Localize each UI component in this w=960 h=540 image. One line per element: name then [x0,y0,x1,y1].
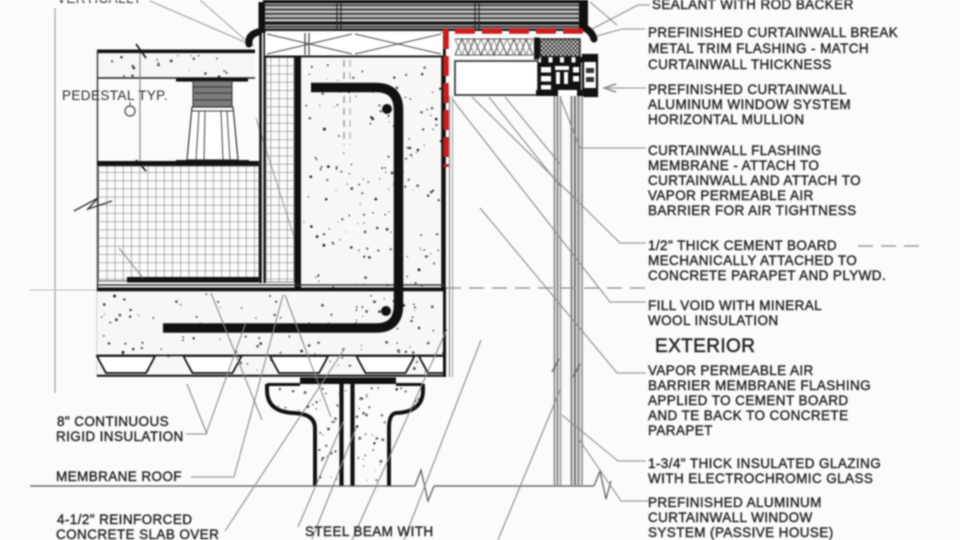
svg-text:MEMBRANE ROOF: MEMBRANE ROOF [56,469,182,484]
svg-text:FILL VOID WITH MINERAL: FILL VOID WITH MINERAL [648,298,822,313]
svg-text:SEALANT WITH ROD BACKER: SEALANT WITH ROD BACKER [652,0,854,12]
svg-text:VAPOR PERMEABLE AIR: VAPOR PERMEABLE AIR [648,363,814,378]
svg-text:CONCRETE SLAB OVER: CONCRETE SLAB OVER [56,527,219,540]
svg-text:VAPOR PERMEABLE AIR: VAPOR PERMEABLE AIR [648,188,814,203]
svg-text:HORIZONTAL MULLION: HORIZONTAL MULLION [648,112,804,127]
svg-text:PEDESTAL TYP.: PEDESTAL TYP. [62,88,168,103]
svg-text:1-3/4" THICK INSULATED GLAZING: 1-3/4" THICK INSULATED GLAZING [648,456,881,471]
svg-text:AND TE BACK TO CONCRETE: AND TE BACK TO CONCRETE [648,408,849,423]
svg-text:8" CONTINUOUS: 8" CONTINUOUS [57,414,169,429]
svg-text:1/2" THICK CEMENT BOARD: 1/2" THICK CEMENT BOARD [648,238,837,253]
svg-text:STEEL BEAM WITH: STEEL BEAM WITH [305,524,434,539]
svg-text:EXTERIOR: EXTERIOR [655,336,755,357]
svg-text:PREFINISHED ALUMINUM: PREFINISHED ALUMINUM [648,495,822,510]
svg-text:BARRIER FOR AIR TIGHTNESS: BARRIER FOR AIR TIGHTNESS [648,203,857,218]
svg-text:APPLIED TO CEMENT BOARD: APPLIED TO CEMENT BOARD [648,393,849,408]
svg-text:PREFINISHED CURTAINWALL BREAK: PREFINISHED CURTAINWALL BREAK [648,25,898,40]
svg-text:MEMBRANE - ATTACH TO: MEMBRANE - ATTACH TO [648,158,819,173]
svg-text:CURTAINWALL AND ATTACH TO: CURTAINWALL AND ATTACH TO [648,173,861,188]
svg-text:CONCRETE PARAPET AND PLYWD.: CONCRETE PARAPET AND PLYWD. [648,268,886,283]
svg-text:MECHANICALLY ATTACHED TO: MECHANICALLY ATTACHED TO [648,253,857,268]
svg-text:4-1/2" REINFORCED: 4-1/2" REINFORCED [57,512,192,527]
svg-text:WITH ELECTROCHROMIC GLASS: WITH ELECTROCHROMIC GLASS [648,471,873,486]
svg-text:PREFINISHED CURTAINWALL: PREFINISHED CURTAINWALL [648,82,847,97]
svg-text:PARAPET: PARAPET [648,423,713,438]
svg-text:ALUMINUM WINDOW SYSTEM: ALUMINUM WINDOW SYSTEM [648,97,851,112]
svg-text:CURTAINWALL FLASHING: CURTAINWALL FLASHING [648,143,822,158]
svg-text:WOOL INSULATION: WOOL INSULATION [648,313,779,328]
svg-text:SYSTEM (PASSIVE HOUSE): SYSTEM (PASSIVE HOUSE) [648,525,834,540]
svg-text:BARRIER MEMBRANE FLASHING: BARRIER MEMBRANE FLASHING [648,378,871,393]
svg-text:METAL TRIM FLASHING - MATCH: METAL TRIM FLASHING - MATCH [648,41,869,56]
svg-text:CURTAINWALL THICKNESS: CURTAINWALL THICKNESS [648,57,832,72]
svg-text:VERTICALLY: VERTICALLY [57,0,142,6]
svg-text:RIGID INSULATION: RIGID INSULATION [56,429,184,444]
svg-text:CURTAINWALL WINDOW: CURTAINWALL WINDOW [648,510,813,525]
